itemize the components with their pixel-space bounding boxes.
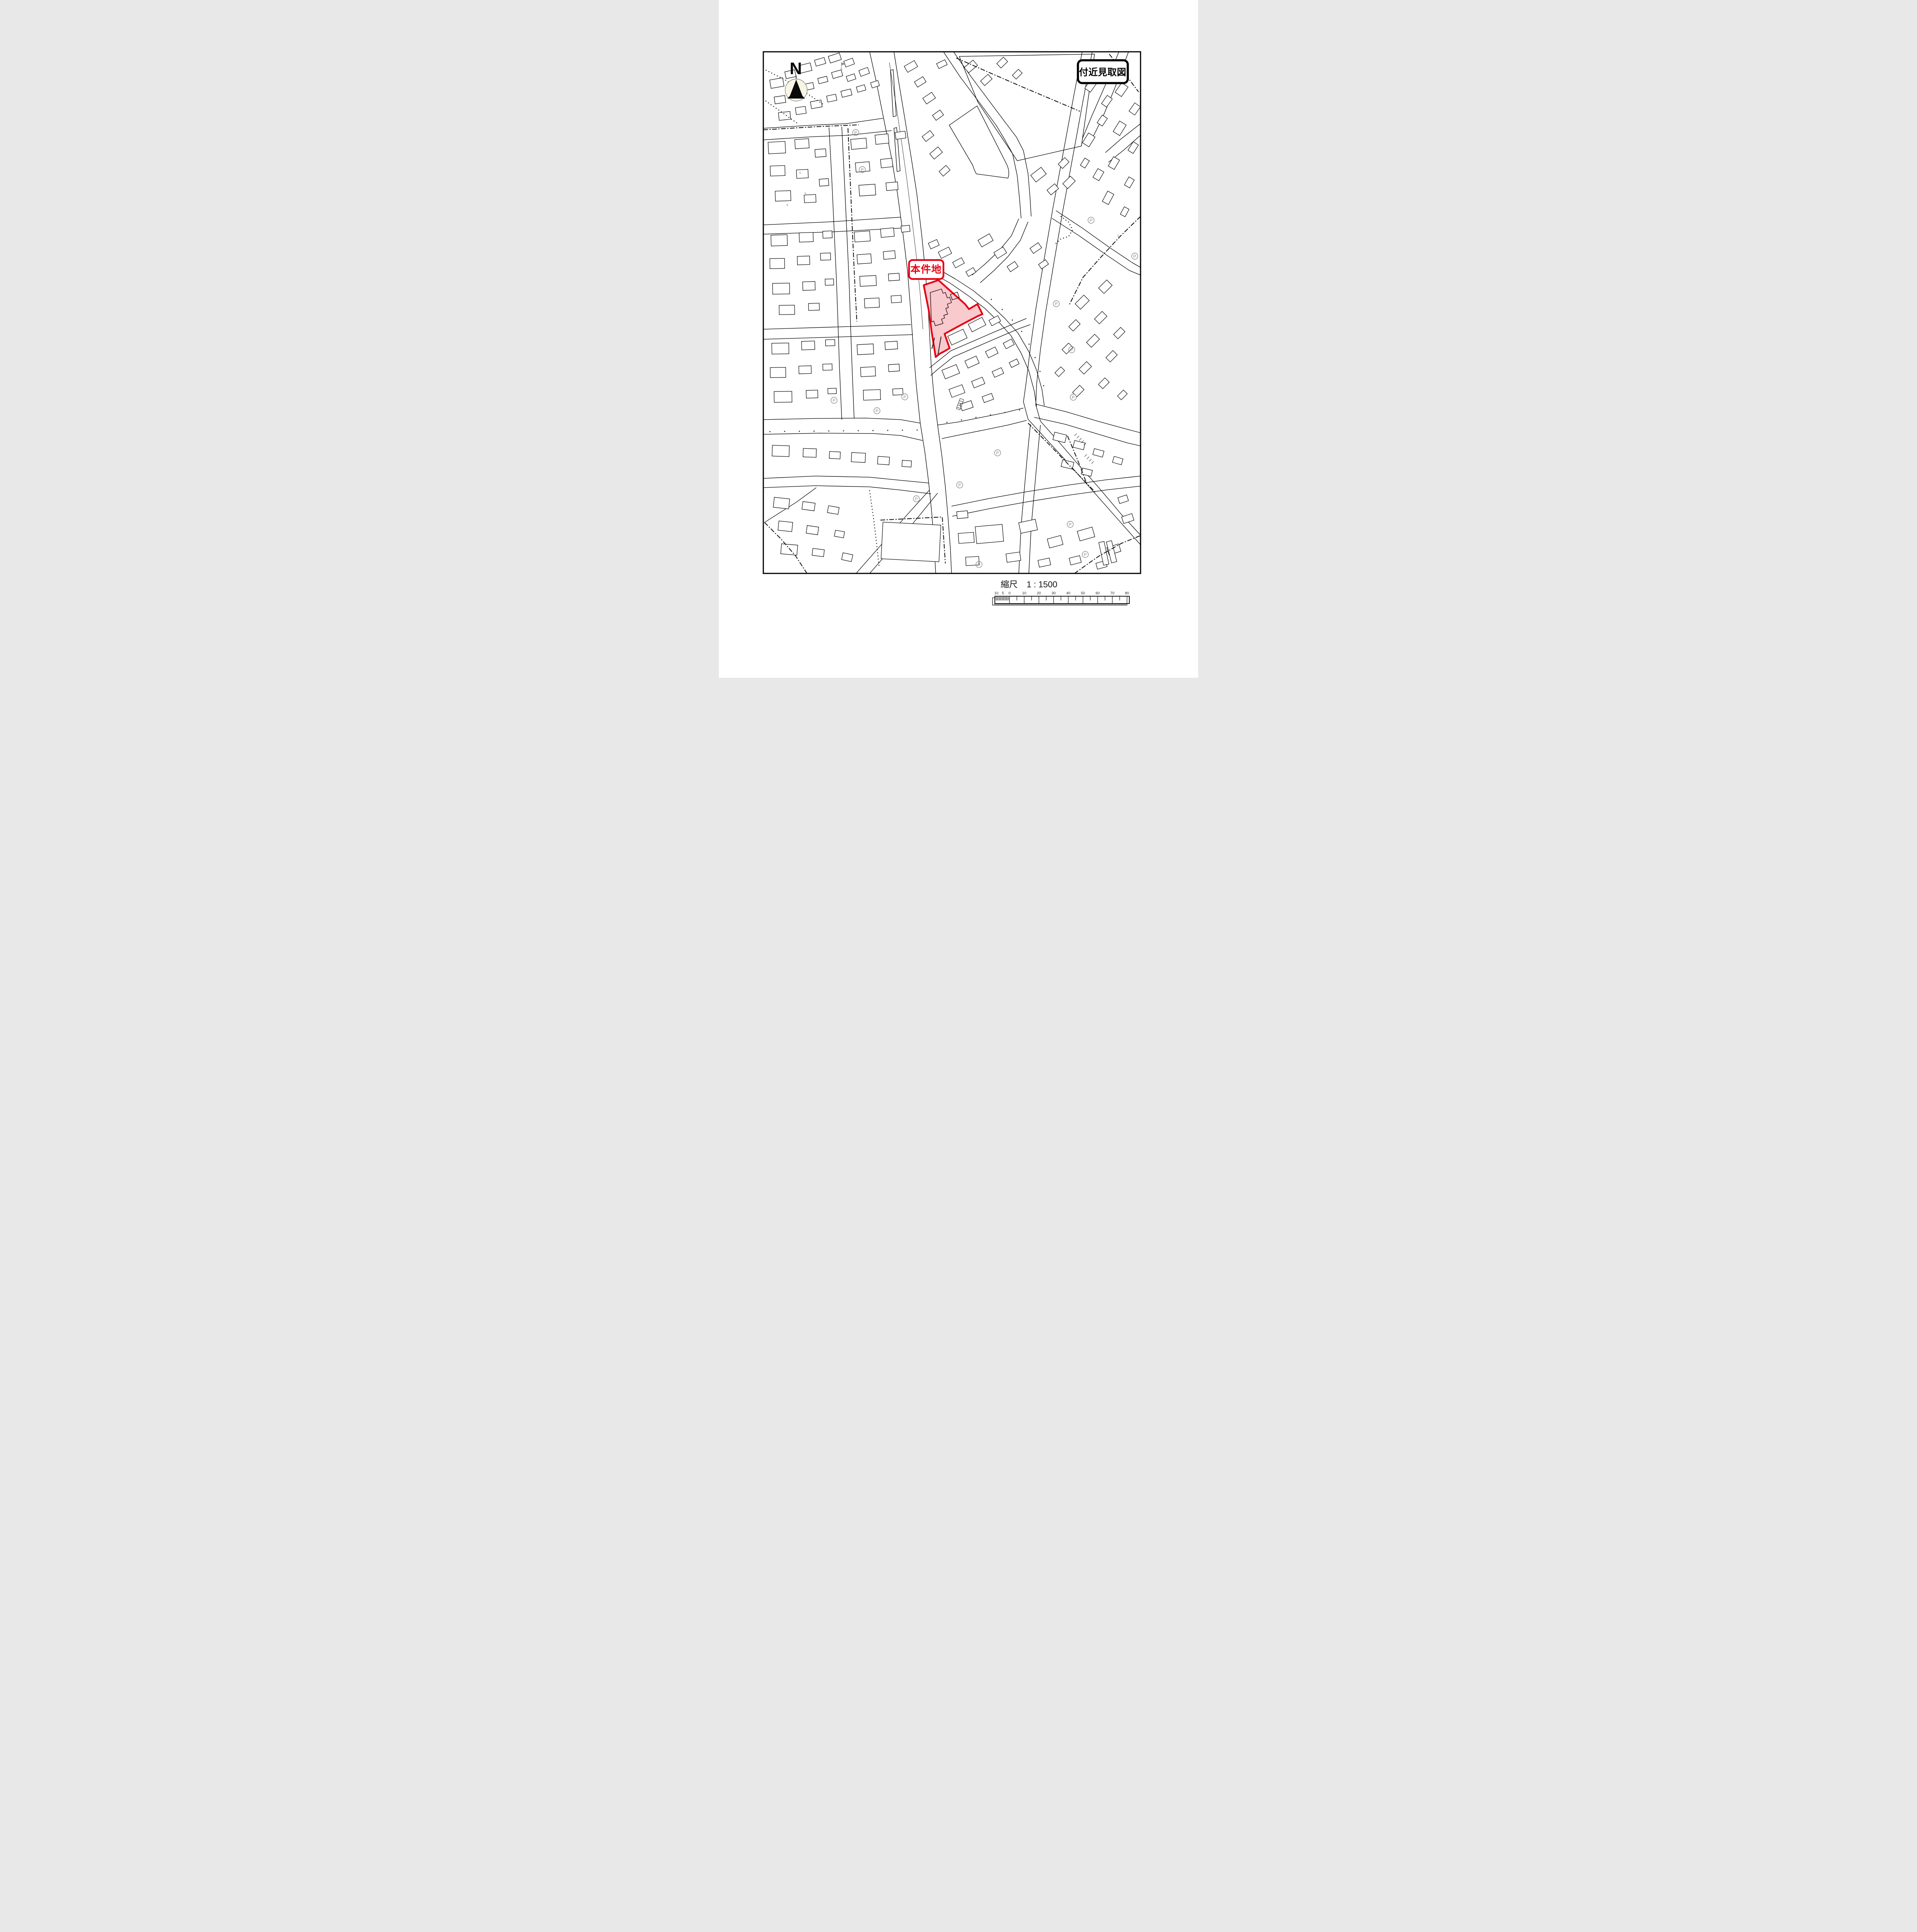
scale-bar-labels: 10 5 0 10 20 30 40 50 60 70 80 <box>994 591 1129 595</box>
svg-text:P: P <box>1084 553 1086 557</box>
bldg <box>815 149 826 157</box>
bldg <box>802 502 815 511</box>
bldg <box>891 295 901 303</box>
svg-text:P: P <box>1055 302 1057 306</box>
bldg <box>864 298 879 308</box>
bldg <box>880 228 894 238</box>
bldg <box>901 225 910 232</box>
scale-ratio: 1 : 1500 <box>1027 580 1057 589</box>
bldg <box>888 364 899 372</box>
bldg <box>795 106 806 114</box>
bldg <box>819 179 829 186</box>
check-mark-icon: ∨ <box>786 203 789 207</box>
bldg <box>799 366 812 374</box>
bldg <box>778 521 793 532</box>
bldg <box>771 235 788 246</box>
bldg <box>829 451 841 459</box>
check-mark-icon: ∨ <box>804 191 807 195</box>
bldg <box>851 452 865 463</box>
bldg <box>773 497 790 509</box>
bldg <box>857 254 872 264</box>
bldg <box>781 544 798 555</box>
bldg <box>779 305 795 315</box>
svg-text:10: 10 <box>1022 591 1027 595</box>
bldg <box>799 232 814 242</box>
svg-text:40: 40 <box>1066 591 1071 595</box>
bldg <box>863 389 881 400</box>
bldg <box>825 279 834 286</box>
bldg <box>877 456 889 465</box>
svg-text:P: P <box>833 398 835 403</box>
bldg <box>803 281 815 290</box>
bldg <box>772 343 789 354</box>
bldg <box>770 165 785 176</box>
check-mark-icon: ∨ <box>1117 234 1120 238</box>
svg-text:P: P <box>1072 395 1074 400</box>
map-canvas: P P P P P P P P P P P P P P P P ∨ ∨ ∨ ∨ <box>719 0 1198 678</box>
bldg <box>804 194 816 203</box>
compass-needle-base <box>787 95 805 99</box>
check-mark-icon: ∨ <box>799 171 802 175</box>
bldg <box>854 231 870 242</box>
svg-text:P: P <box>875 409 878 413</box>
bldg <box>859 184 876 196</box>
title-box: 付近見取図 <box>1078 60 1128 83</box>
bldg <box>857 344 873 355</box>
site-label: 本件地 <box>910 264 941 275</box>
scale-bar: 10 5 0 10 20 30 40 50 60 70 80 <box>993 591 1129 605</box>
svg-text:P: P <box>1069 522 1071 527</box>
vicinity-map-sheet: P P P P P P P P P P P P P P P P ∨ ∨ ∨ ∨ <box>719 0 1198 678</box>
bldg <box>797 256 810 265</box>
bldg <box>772 445 790 457</box>
map-title: 付近見取図 <box>1079 67 1127 78</box>
bldg <box>795 139 809 149</box>
svg-text:P: P <box>958 483 961 488</box>
svg-text:50: 50 <box>1081 591 1085 595</box>
north-label: N <box>790 59 802 78</box>
bldg <box>812 548 824 557</box>
scale-prefix: 縮尺 <box>1001 580 1018 589</box>
bldg <box>875 134 889 144</box>
bldg <box>802 341 815 350</box>
bldg <box>860 276 876 286</box>
bldg <box>888 273 899 281</box>
svg-text:70: 70 <box>1110 591 1115 595</box>
bldg <box>902 460 911 467</box>
site-label-box: 本件地 <box>909 260 943 279</box>
bldg <box>975 524 1004 544</box>
bldg <box>893 388 903 395</box>
svg-text:P: P <box>977 563 980 567</box>
bldg <box>958 532 974 544</box>
svg-text:P: P <box>861 168 863 172</box>
bldg <box>823 231 833 238</box>
svg-text:80: 80 <box>1125 591 1129 595</box>
svg-text:P: P <box>1070 348 1073 352</box>
bldg <box>895 131 906 139</box>
bldg <box>774 95 786 104</box>
bldg <box>821 253 831 260</box>
svg-text:30: 30 <box>1052 591 1056 595</box>
bldg <box>826 340 835 346</box>
svg-text:P: P <box>996 451 999 456</box>
svg-text:P: P <box>915 497 918 502</box>
bldg <box>778 111 791 120</box>
bldg <box>881 522 941 562</box>
svg-text:10: 10 <box>994 591 999 595</box>
bldg <box>860 367 875 377</box>
svg-text:60: 60 <box>1096 591 1100 595</box>
bldg <box>885 341 897 350</box>
bldg <box>1006 552 1021 563</box>
bldg <box>774 391 792 403</box>
svg-text:0: 0 <box>1008 591 1010 595</box>
bldg <box>880 158 893 168</box>
svg-text:20: 20 <box>1037 591 1041 595</box>
svg-text:P: P <box>903 395 906 400</box>
bldg <box>823 364 833 371</box>
bldg <box>834 530 844 538</box>
bldg <box>965 556 979 566</box>
bldg <box>957 511 968 519</box>
bldg <box>886 182 898 191</box>
bldg <box>770 367 786 378</box>
bldg <box>809 303 820 311</box>
bldg <box>828 388 836 394</box>
svg-text:P: P <box>1133 254 1136 259</box>
bldg <box>806 390 818 398</box>
bldg <box>883 251 896 260</box>
bldg <box>803 448 817 457</box>
bldg <box>770 259 785 269</box>
svg-text:P: P <box>1090 218 1092 223</box>
svg-text:5: 5 <box>1002 591 1004 595</box>
bldg <box>768 141 786 154</box>
bldg <box>806 526 819 535</box>
svg-text:P: P <box>854 131 857 135</box>
scale-block: 縮尺 1 : 1500 <box>993 580 1129 605</box>
bldg <box>773 283 790 294</box>
bldg <box>851 138 867 149</box>
bldg <box>796 169 808 179</box>
bldg <box>775 190 791 201</box>
